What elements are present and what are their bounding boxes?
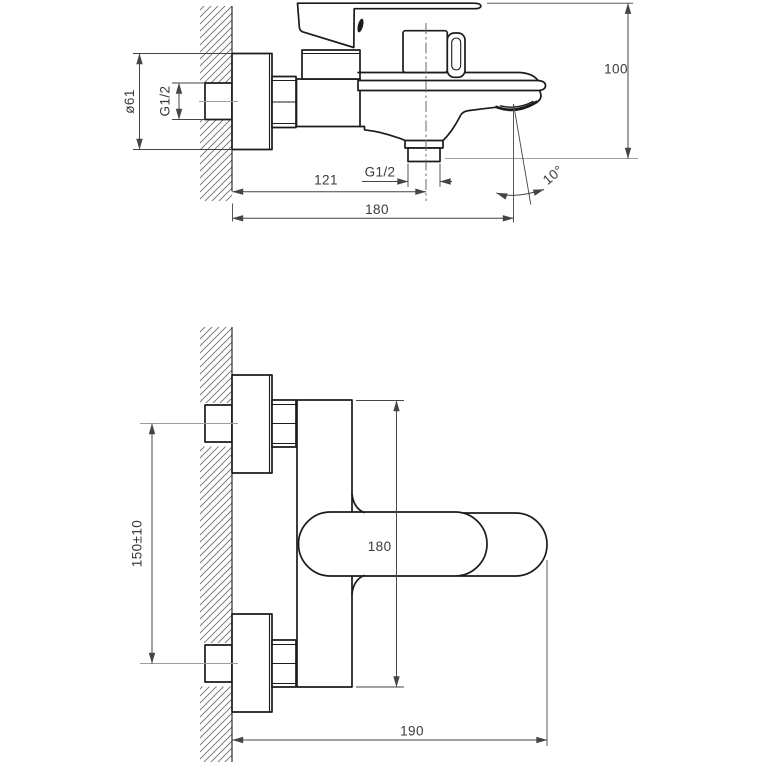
- dim-label-inlet-thread: G1/2: [158, 86, 173, 117]
- dimension-inlet-thread: G1/2: [158, 83, 205, 120]
- dim-label-spout-angle: 10°: [540, 162, 566, 187]
- dimension-inlet-centers: 150±10: [130, 424, 153, 664]
- dim-label-wall-to-outlet: 121: [314, 173, 338, 188]
- lower-mounting-nut: [272, 640, 296, 687]
- dim-label-overall-depth: 190: [400, 724, 424, 739]
- lever-pivot-detail: [356, 18, 364, 33]
- dim-label-flange-diameter: ø61: [122, 89, 137, 113]
- dim-label-inlet-centers: 150±10: [130, 520, 145, 567]
- bath-mixer-drawing: ø61 G1/2 100 121 G1/2 180: [0, 0, 762, 762]
- mounting-nut: [272, 77, 296, 128]
- dimension-wall-to-spout: 180: [233, 202, 514, 222]
- dim-label-wall-to-spout: 180: [365, 202, 389, 217]
- diverter-knob: [403, 31, 465, 78]
- cartridge-housing: [302, 50, 360, 79]
- side-view: ø61 G1/2 100 121 G1/2 180: [122, 3, 638, 222]
- dimension-outlet-thread: G1/2: [362, 164, 452, 188]
- lever-grip: [299, 512, 488, 576]
- technical-drawing-page: ø61 G1/2 100 121 G1/2 180: [0, 0, 762, 762]
- shower-outlet: [405, 141, 443, 162]
- wall-hatching-front: [200, 327, 232, 762]
- dimension-spout-angle: 10°: [497, 104, 567, 223]
- dimension-wall-to-outlet: 121: [233, 173, 427, 192]
- dim-label-outlet-thread: G1/2: [365, 165, 396, 180]
- dim-label-body-height: 180: [368, 539, 392, 554]
- dim-label-overall-height: 100: [604, 62, 628, 77]
- diverter-ring: [447, 33, 465, 77]
- upper-mounting-nut: [272, 400, 296, 447]
- front-view: 150±10 180 190: [130, 327, 548, 762]
- valve-body: [297, 79, 361, 127]
